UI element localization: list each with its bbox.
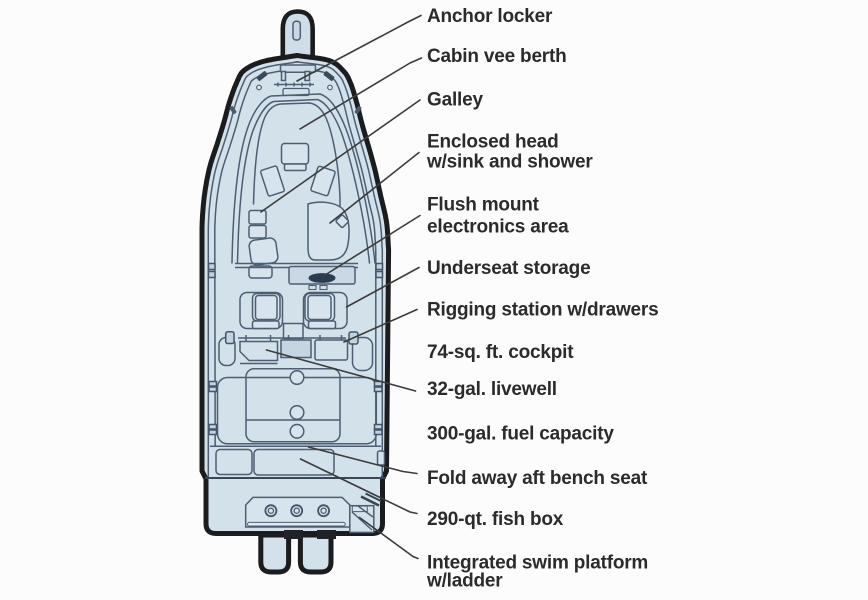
svg-text:Rigging station w/drawers: Rigging station w/drawers — [427, 300, 658, 321]
svg-text:Fold away aft bench seat: Fold away aft bench seat — [427, 468, 648, 489]
svg-text:Cabin vee berth: Cabin vee berth — [427, 46, 567, 67]
svg-text:Flush mount: Flush mount — [427, 195, 540, 216]
svg-text:300-gal. fuel capacity: 300-gal. fuel capacity — [427, 424, 614, 445]
svg-text:Anchor locker: Anchor locker — [427, 6, 553, 27]
svg-text:Galley: Galley — [427, 90, 483, 111]
svg-text:electronics area: electronics area — [427, 217, 569, 238]
svg-text:Underseat storage: Underseat storage — [427, 258, 590, 279]
svg-text:290-qt. fish box: 290-qt. fish box — [427, 509, 564, 530]
svg-text:Enclosed head: Enclosed head — [427, 132, 559, 153]
svg-text:74-sq. ft. cockpit: 74-sq. ft. cockpit — [427, 342, 574, 363]
svg-text:w/sink and shower: w/sink and shower — [426, 152, 593, 173]
svg-text:w/ladder: w/ladder — [426, 571, 503, 592]
svg-text:32-gal. livewell: 32-gal. livewell — [427, 379, 557, 400]
